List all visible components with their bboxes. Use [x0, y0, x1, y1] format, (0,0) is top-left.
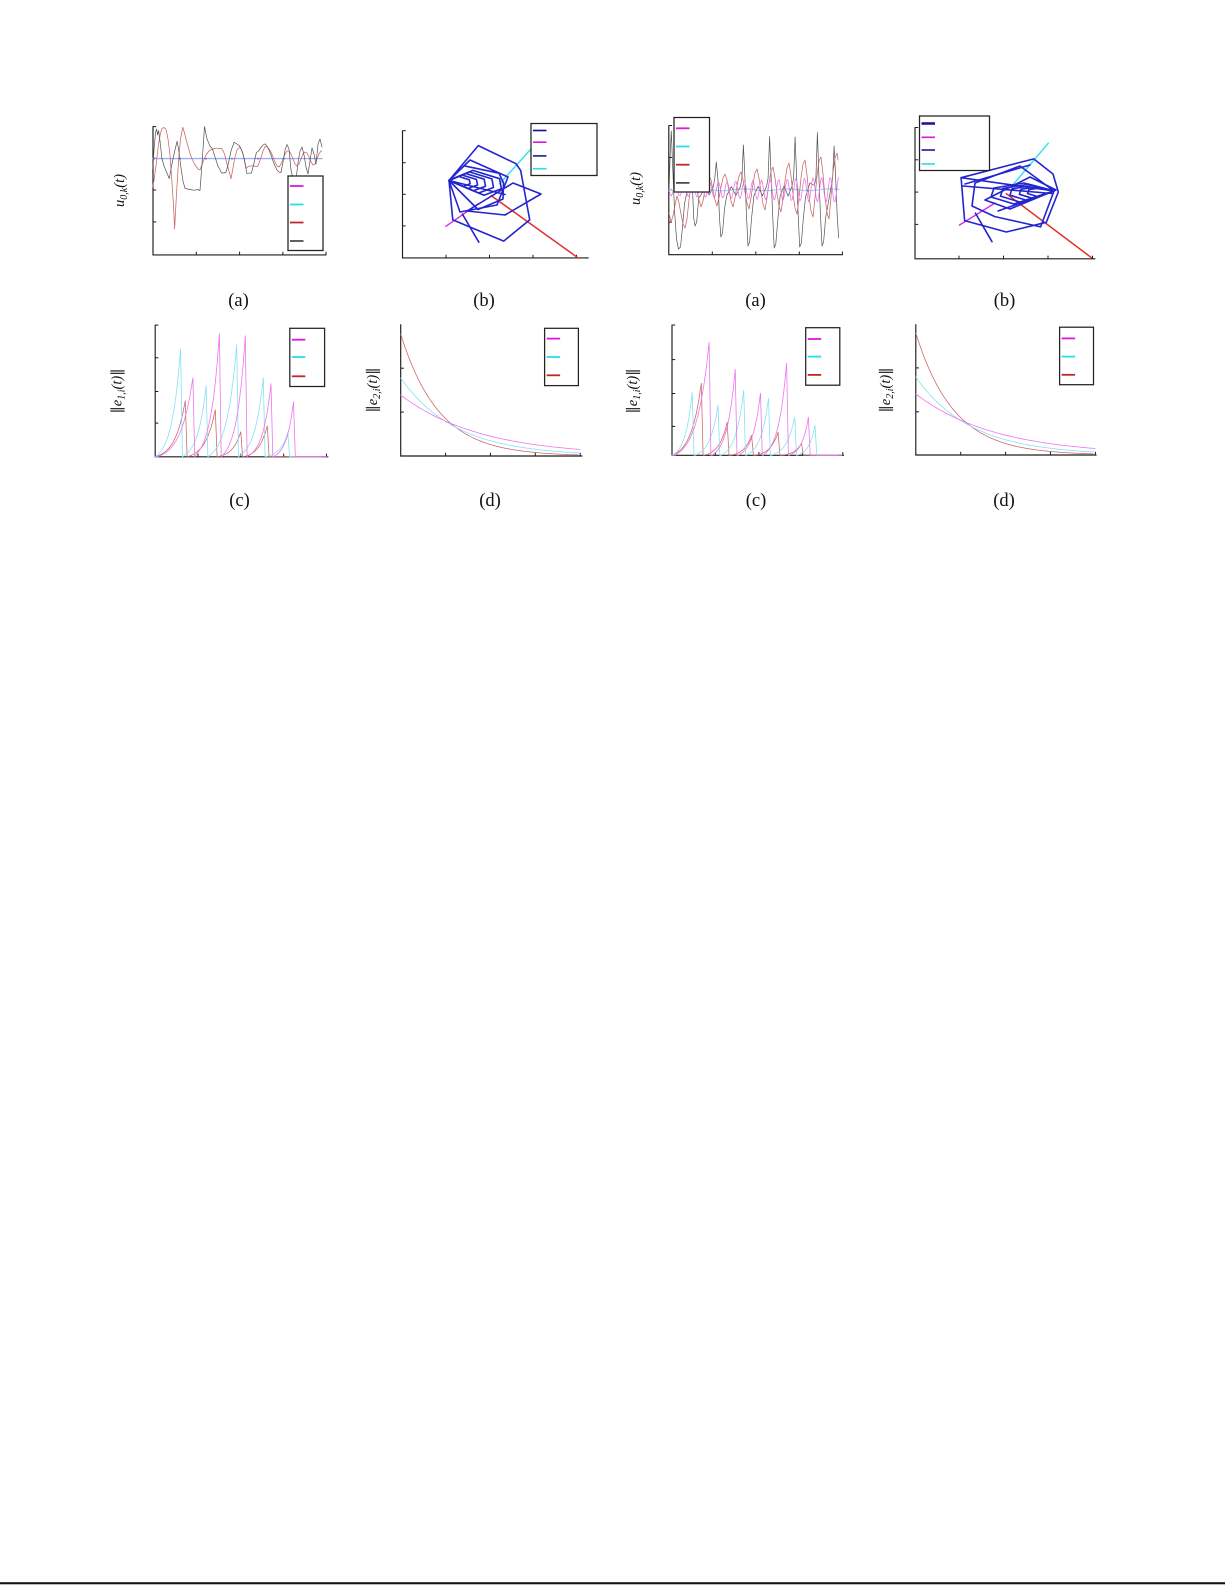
svg-text:(b): (b): [473, 291, 495, 311]
svg-text:(b): (b): [994, 291, 1016, 311]
svg-text:(d): (d): [479, 491, 501, 511]
svg-text:(a): (a): [228, 291, 249, 311]
svg-text:(c): (c): [746, 491, 767, 511]
svg-text:(d): (d): [993, 491, 1015, 511]
svg-text:(c): (c): [229, 491, 250, 511]
svg-text:(a): (a): [745, 291, 766, 311]
